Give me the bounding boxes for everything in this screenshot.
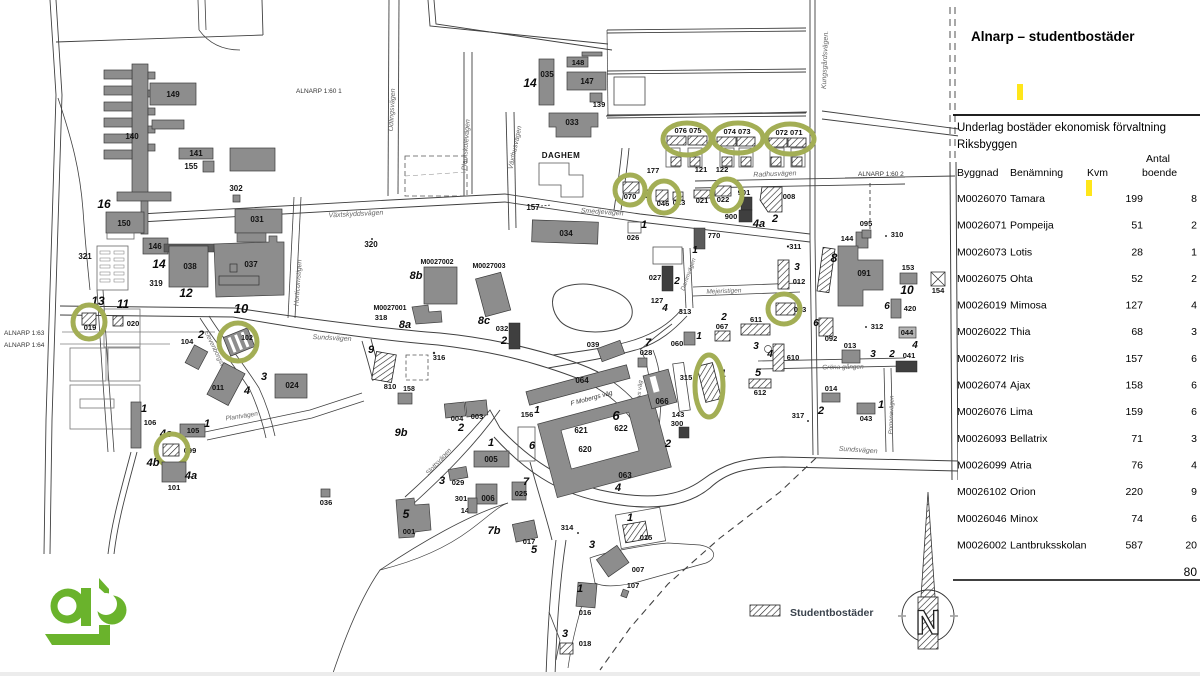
svg-text:Pompeija: Pompeija <box>1010 220 1054 232</box>
svg-text:018: 018 <box>579 639 592 648</box>
svg-text:3: 3 <box>1191 326 1197 338</box>
svg-text:2: 2 <box>197 329 204 341</box>
svg-text:6: 6 <box>1191 353 1197 365</box>
svg-text:066: 066 <box>655 397 669 406</box>
svg-text:106: 106 <box>144 418 157 427</box>
svg-text:147: 147 <box>580 77 594 86</box>
svg-text:8c: 8c <box>478 315 490 327</box>
svg-text:4: 4 <box>661 303 668 314</box>
svg-text:003: 003 <box>471 412 484 421</box>
svg-text:5: 5 <box>755 367 762 379</box>
svg-text:091: 091 <box>857 269 871 278</box>
svg-text:6: 6 <box>612 408 620 423</box>
svg-text:001: 001 <box>403 527 416 536</box>
svg-text:095: 095 <box>860 219 873 228</box>
svg-text:1: 1 <box>641 219 647 231</box>
svg-text:2: 2 <box>664 438 671 450</box>
svg-text:1: 1 <box>1191 246 1197 258</box>
svg-text:312: 312 <box>871 322 884 331</box>
svg-text:Atria: Atria <box>1010 460 1032 472</box>
svg-text:301: 301 <box>455 494 468 503</box>
svg-text:177: 177 <box>647 166 660 175</box>
svg-text:6: 6 <box>529 440 536 452</box>
svg-text:144: 144 <box>841 234 854 243</box>
svg-text:026: 026 <box>627 233 640 242</box>
svg-text:12: 12 <box>179 286 193 300</box>
svg-text:029: 029 <box>452 478 465 487</box>
svg-text:Ohta: Ohta <box>1010 273 1033 285</box>
svg-text:M0026070: M0026070 <box>957 193 1007 205</box>
svg-text:6: 6 <box>1191 406 1197 418</box>
svg-text:032: 032 <box>496 324 509 333</box>
svg-text:610: 610 <box>787 353 800 362</box>
svg-text:037: 037 <box>244 260 258 269</box>
svg-text:16: 16 <box>97 197 111 211</box>
svg-text:027: 027 <box>649 273 662 282</box>
svg-text:019: 019 <box>84 323 97 332</box>
svg-text:302: 302 <box>229 184 243 193</box>
svg-text:Byggnad: Byggnad <box>957 167 999 179</box>
svg-text:5: 5 <box>403 507 410 521</box>
svg-text:M0026019: M0026019 <box>957 300 1007 312</box>
svg-text:M0027003: M0027003 <box>472 263 505 270</box>
svg-text:024: 024 <box>285 381 299 390</box>
svg-text:016: 016 <box>579 608 592 617</box>
svg-text:3: 3 <box>589 539 595 551</box>
svg-text:146: 146 <box>148 242 162 251</box>
svg-text:2: 2 <box>817 405 824 417</box>
svg-text:8: 8 <box>1191 193 1197 205</box>
svg-text:6: 6 <box>813 318 819 329</box>
svg-text:156: 156 <box>521 410 534 419</box>
svg-text:127: 127 <box>1125 300 1143 312</box>
svg-text:1: 1 <box>488 437 494 449</box>
svg-text:3: 3 <box>794 262 800 273</box>
svg-text:038: 038 <box>183 262 197 271</box>
svg-text:150: 150 <box>117 219 131 228</box>
svg-text:158: 158 <box>403 386 415 393</box>
svg-text:Lantbruksskolan: Lantbruksskolan <box>1010 539 1087 551</box>
svg-text:M0027001: M0027001 <box>373 305 406 312</box>
svg-text:Mejeristigen: Mejeristigen <box>706 287 742 295</box>
svg-text:015: 015 <box>640 533 653 542</box>
svg-text:149: 149 <box>166 90 180 99</box>
svg-text:008: 008 <box>783 192 796 201</box>
svg-text:105: 105 <box>187 426 200 435</box>
svg-text:3: 3 <box>261 371 267 383</box>
svg-text:M0026046: M0026046 <box>957 513 1007 525</box>
svg-text:318: 318 <box>375 313 388 322</box>
svg-text:80: 80 <box>1184 565 1198 579</box>
svg-text:Iris: Iris <box>1010 353 1024 365</box>
svg-text:M0026072: M0026072 <box>957 353 1007 365</box>
svg-text:7b: 7b <box>488 525 501 537</box>
svg-text:DAGHEM: DAGHEM <box>542 151 581 160</box>
svg-text:810: 810 <box>384 382 397 391</box>
svg-text:68: 68 <box>1131 326 1143 338</box>
svg-text:320: 320 <box>364 240 378 249</box>
svg-text:1: 1 <box>204 418 210 430</box>
svg-text:102: 102 <box>241 335 253 342</box>
svg-text:006: 006 <box>481 494 495 503</box>
svg-text:035: 035 <box>540 70 554 79</box>
svg-text:3: 3 <box>753 341 759 352</box>
svg-text:043: 043 <box>860 414 873 423</box>
svg-text:4: 4 <box>766 349 773 360</box>
svg-text:M0026074: M0026074 <box>957 380 1007 392</box>
svg-text:139: 139 <box>593 100 606 109</box>
svg-text:71: 71 <box>1131 433 1143 445</box>
svg-text:5: 5 <box>531 544 538 556</box>
svg-text:14: 14 <box>523 76 537 90</box>
svg-text:148: 148 <box>572 58 585 67</box>
svg-text:Orion: Orion <box>1010 486 1036 498</box>
svg-text:9: 9 <box>368 344 375 356</box>
svg-text:122: 122 <box>716 165 729 174</box>
svg-text:8: 8 <box>831 251 838 265</box>
svg-text:159: 159 <box>1125 406 1143 418</box>
svg-text:ALNARP 1:64: ALNARP 1:64 <box>4 342 45 349</box>
svg-text:158: 158 <box>1125 380 1143 392</box>
svg-text:011: 011 <box>212 383 224 392</box>
svg-text:2: 2 <box>1191 273 1197 285</box>
svg-text:067: 067 <box>716 322 729 331</box>
svg-text:300: 300 <box>671 419 684 428</box>
svg-text:587: 587 <box>1125 539 1143 551</box>
svg-text:2: 2 <box>888 349 895 360</box>
svg-text:014: 014 <box>825 384 838 393</box>
svg-text:076 075: 076 075 <box>674 126 701 135</box>
svg-text:620: 620 <box>578 445 592 454</box>
svg-text:8b: 8b <box>410 270 423 282</box>
svg-text:321: 321 <box>78 252 92 261</box>
svg-text:317: 317 <box>792 411 805 420</box>
svg-text:52: 52 <box>1131 273 1143 285</box>
svg-text:622: 622 <box>614 424 628 433</box>
svg-text:4: 4 <box>243 385 250 397</box>
svg-text:Thia: Thia <box>1010 326 1031 338</box>
svg-text:770: 770 <box>708 231 721 240</box>
svg-text:1: 1 <box>141 403 147 415</box>
svg-text:063: 063 <box>618 471 632 480</box>
svg-text:101: 101 <box>168 483 181 492</box>
svg-text:157: 157 <box>1125 353 1143 365</box>
svg-text:314: 314 <box>561 523 574 532</box>
svg-text:3: 3 <box>562 628 568 640</box>
svg-text:319: 319 <box>149 279 163 288</box>
svg-text:041: 041 <box>903 351 916 360</box>
svg-text:092: 092 <box>825 334 838 343</box>
svg-text:Kvm: Kvm <box>1087 167 1108 179</box>
svg-text:141: 141 <box>189 149 203 158</box>
svg-text:025: 025 <box>515 489 528 498</box>
svg-text:4a: 4a <box>752 218 765 230</box>
svg-text:M0026002: M0026002 <box>957 539 1007 551</box>
svg-text:2: 2 <box>500 335 507 347</box>
svg-text:28: 28 <box>1131 246 1143 258</box>
svg-text:M0026022: M0026022 <box>957 326 1007 338</box>
svg-text:ALNARP 1:63: ALNARP 1:63 <box>4 330 45 337</box>
svg-text:153: 153 <box>902 263 915 272</box>
svg-text:6: 6 <box>1191 513 1197 525</box>
svg-text:316: 316 <box>433 353 446 362</box>
svg-text:007: 007 <box>632 565 645 574</box>
svg-text:6: 6 <box>1191 380 1197 392</box>
svg-text:021: 021 <box>696 196 709 205</box>
svg-text:2: 2 <box>720 312 727 323</box>
svg-text:4: 4 <box>911 340 918 351</box>
svg-text:Gröna gången: Gröna gången <box>822 363 864 372</box>
svg-text:104: 104 <box>181 337 194 346</box>
svg-text:064: 064 <box>575 376 589 385</box>
svg-text:2: 2 <box>457 422 464 434</box>
svg-text:•311: •311 <box>787 242 802 251</box>
svg-text:2: 2 <box>1191 220 1197 232</box>
svg-text:1: 1 <box>577 583 583 595</box>
svg-text:M0026071: M0026071 <box>957 220 1007 232</box>
svg-text:ALNARP 1:60 1: ALNARP 1:60 1 <box>296 88 342 95</box>
svg-text:046: 046 <box>657 199 670 208</box>
svg-text:4: 4 <box>1191 300 1197 312</box>
svg-text:20: 20 <box>1185 539 1197 551</box>
svg-text:028: 028 <box>640 348 653 357</box>
svg-text:611: 611 <box>750 315 762 324</box>
svg-text:070: 070 <box>624 192 637 201</box>
svg-text:121: 121 <box>695 165 708 174</box>
svg-text:1: 1 <box>627 512 633 524</box>
svg-text:107: 107 <box>627 581 640 590</box>
svg-text:157: 157 <box>526 203 540 212</box>
svg-text:036: 036 <box>320 498 333 507</box>
svg-text:7: 7 <box>523 476 530 488</box>
svg-text:060: 060 <box>671 339 684 348</box>
svg-text:022: 022 <box>717 195 730 204</box>
svg-text:Alnarp – studentbostäder: Alnarp – studentbostäder <box>971 29 1135 44</box>
svg-text:76: 76 <box>1131 460 1143 472</box>
svg-text:10: 10 <box>900 283 914 297</box>
svg-text:1: 1 <box>534 405 540 416</box>
svg-text:220: 220 <box>1125 486 1143 498</box>
svg-text:4b: 4b <box>146 457 160 469</box>
svg-text:M0026075: M0026075 <box>957 273 1007 285</box>
svg-text:boende: boende <box>1142 167 1177 179</box>
svg-text:1: 1 <box>878 399 884 411</box>
svg-text:140: 140 <box>125 132 139 141</box>
svg-text:M0026099: M0026099 <box>957 460 1007 472</box>
svg-text:031: 031 <box>250 215 264 224</box>
svg-text:155: 155 <box>184 162 198 171</box>
svg-text:034: 034 <box>559 229 573 238</box>
svg-text:8a: 8a <box>399 319 411 331</box>
svg-text:033: 033 <box>565 118 579 127</box>
svg-text:013: 013 <box>844 341 857 350</box>
svg-text:N: N <box>916 604 941 642</box>
svg-text:M0027002: M0027002 <box>420 259 453 266</box>
svg-text:020: 020 <box>127 319 140 328</box>
svg-text:2: 2 <box>771 213 778 225</box>
svg-text:9b: 9b <box>395 427 408 439</box>
svg-text:4: 4 <box>1191 460 1197 472</box>
svg-text:315: 315 <box>680 373 693 382</box>
svg-text:9: 9 <box>1191 486 1197 498</box>
svg-text:3: 3 <box>439 475 445 487</box>
svg-text:Riksbyggen: Riksbyggen <box>957 139 1017 151</box>
svg-text:Mimosa: Mimosa <box>1010 300 1047 312</box>
svg-text:310: 310 <box>891 230 904 239</box>
svg-text:199: 199 <box>1125 193 1143 205</box>
svg-text:612: 612 <box>754 388 767 397</box>
svg-text:621: 621 <box>574 426 588 435</box>
svg-text:M0026076: M0026076 <box>957 406 1007 418</box>
svg-text:154: 154 <box>932 286 945 295</box>
svg-text:072 071: 072 071 <box>775 128 802 137</box>
svg-text:012: 012 <box>793 277 806 286</box>
svg-text:74: 74 <box>1131 513 1143 525</box>
svg-text:044: 044 <box>901 328 914 337</box>
svg-text:Lima: Lima <box>1010 406 1033 418</box>
svg-text:3: 3 <box>870 349 876 360</box>
svg-text:074 073: 074 073 <box>723 127 750 136</box>
svg-text:M0026102: M0026102 <box>957 486 1007 498</box>
svg-text:7: 7 <box>645 337 652 349</box>
svg-text:10: 10 <box>234 301 249 316</box>
svg-text:Tamara: Tamara <box>1010 193 1045 205</box>
svg-text:Lotis: Lotis <box>1010 246 1032 258</box>
svg-text:6: 6 <box>884 301 890 312</box>
svg-text:Bellatrix: Bellatrix <box>1010 433 1048 445</box>
svg-text:313: 313 <box>679 307 692 316</box>
svg-text:M0026073: M0026073 <box>957 246 1007 258</box>
svg-text:1: 1 <box>692 245 698 256</box>
svg-text:4: 4 <box>614 482 621 494</box>
svg-text:039: 039 <box>587 340 600 349</box>
svg-text:Underlag bostäder ekonomisk fö: Underlag bostäder ekonomisk förvaltning <box>957 122 1166 134</box>
svg-text:005: 005 <box>484 455 498 464</box>
svg-text:1: 1 <box>696 331 702 342</box>
svg-text:51: 51 <box>1131 220 1143 232</box>
svg-text:4a: 4a <box>184 470 197 482</box>
svg-text:Minox: Minox <box>1010 513 1039 525</box>
svg-text:3: 3 <box>1191 433 1197 445</box>
svg-text:2: 2 <box>673 276 680 287</box>
svg-text:Benämning: Benämning <box>1010 167 1063 179</box>
svg-text:M0026093: M0026093 <box>957 433 1007 445</box>
svg-text:Ajax: Ajax <box>1010 380 1031 392</box>
svg-text:ALNARP 1:60 2: ALNARP 1:60 2 <box>858 171 904 178</box>
svg-text:Antal: Antal <box>1146 153 1170 165</box>
svg-text:Studentbostäder: Studentbostäder <box>790 607 873 619</box>
svg-text:420: 420 <box>904 304 917 313</box>
svg-text:14: 14 <box>152 257 166 271</box>
